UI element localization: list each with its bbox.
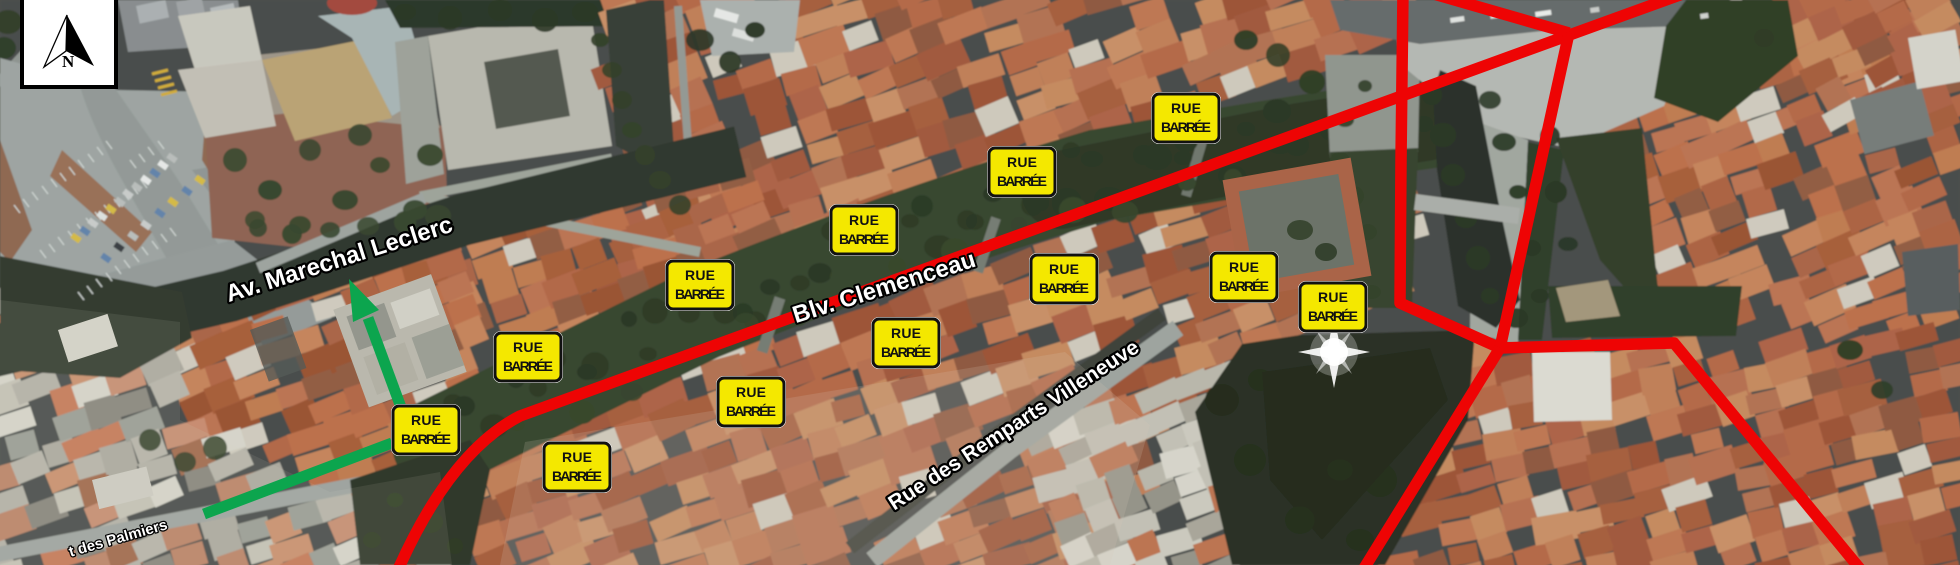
svg-text:BARRÉE: BARRÉE <box>726 403 776 419</box>
svg-text:RUE: RUE <box>1171 100 1201 116</box>
svg-text:RUE: RUE <box>411 412 441 428</box>
svg-text:RUE: RUE <box>1229 259 1259 275</box>
svg-text:RUE: RUE <box>1049 261 1079 277</box>
svg-text:RUE: RUE <box>562 449 592 465</box>
svg-text:N: N <box>62 52 75 71</box>
svg-text:RUE: RUE <box>736 384 766 400</box>
svg-text:RUE: RUE <box>1007 154 1037 170</box>
svg-text:BARRÉE: BARRÉE <box>1161 119 1211 135</box>
svg-text:RUE: RUE <box>1318 289 1348 305</box>
svg-text:BARRÉE: BARRÉE <box>1039 280 1089 296</box>
svg-text:RUE: RUE <box>891 325 921 341</box>
svg-text:BARRÉE: BARRÉE <box>552 468 602 484</box>
svg-text:BARRÉE: BARRÉE <box>1219 278 1269 294</box>
svg-text:BARRÉE: BARRÉE <box>503 358 553 374</box>
svg-text:BARRÉE: BARRÉE <box>839 231 889 247</box>
svg-text:BARRÉE: BARRÉE <box>401 431 451 447</box>
svg-text:RUE: RUE <box>513 339 543 355</box>
svg-text:BARRÉE: BARRÉE <box>997 173 1047 189</box>
svg-text:BARRÉE: BARRÉE <box>881 344 931 360</box>
svg-text:BARRÉE: BARRÉE <box>675 286 725 302</box>
svg-text:RUE: RUE <box>849 212 879 228</box>
svg-text:RUE: RUE <box>685 267 715 283</box>
svg-text:BARRÉE: BARRÉE <box>1308 308 1358 324</box>
